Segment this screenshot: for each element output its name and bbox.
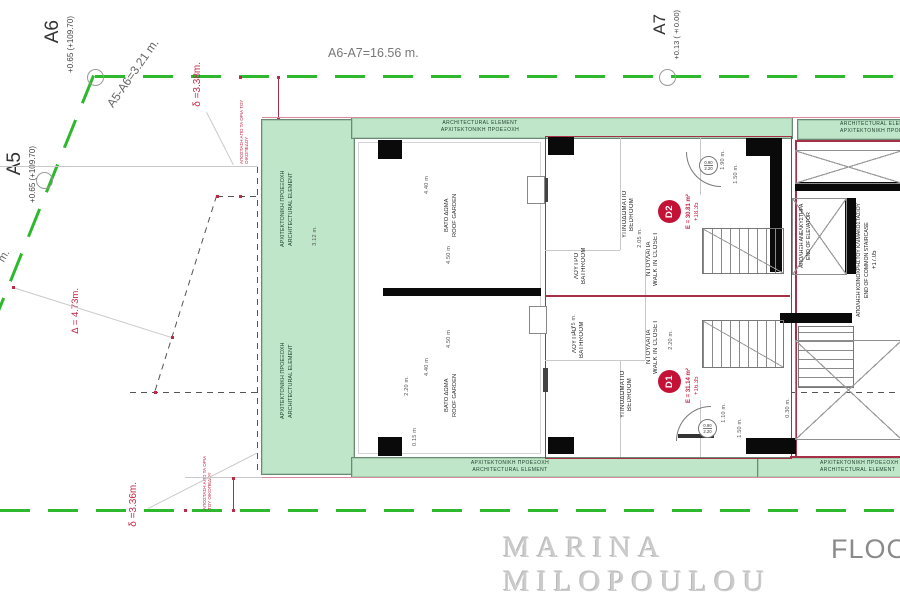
architectural-band-top-right-label: ARCHITECTURAL ELEMENT ΑΡΧΙΤΕΚΤΟΝΙΚΗ ΠΡΟΕ… bbox=[840, 121, 900, 134]
dim-text: 4.50 m bbox=[446, 246, 452, 264]
dim-marker bbox=[239, 195, 242, 198]
band-label-en: ARCHITECTURAL ELEMENT bbox=[288, 150, 294, 268]
common-staircase-label: ΑΠΟΛΗΞΗ ΚΟΙΝΟΧΡΗΣΤΟΥ ΚΛΙΜΑΚΟΣΤΑΣΙΟΥ END … bbox=[856, 200, 878, 320]
architectural-band-bottom-right-label: ΑΡΧΙΤΕΚΤΟΝΙΚΗ ΠΡΟΕΞΟΧΗ ARCHITECTURAL ELE… bbox=[820, 460, 900, 473]
band-label-en: ARCHITECTURAL ELEMENT bbox=[288, 322, 294, 440]
interior-wall bbox=[620, 137, 621, 250]
elevator-label: ΑΠΟΛΗΞΗ ΑΝΕΛΚΥΣΤΗΡΑ END OF ELEVATOR bbox=[799, 202, 812, 270]
dim-marker bbox=[232, 477, 235, 480]
band-label-gr: ΑΡΧΙΤΕΚΤΟΝΙΚΗ ΠΡΟΕΞΟΧΗ bbox=[280, 150, 286, 268]
roof-garden-en: ROOF GARDEN bbox=[452, 352, 458, 438]
d1-bedroom-label: ΥΠΝΟΔΩΜΑΤΙΟ BEDROOM bbox=[620, 358, 633, 430]
staircase-level: +17.05 bbox=[872, 200, 878, 320]
unit-badge-d1: D1 bbox=[658, 370, 681, 393]
leader-line bbox=[206, 112, 234, 165]
dim-text: 1.75 m. bbox=[571, 314, 577, 334]
column bbox=[548, 437, 574, 454]
dim-marker bbox=[171, 336, 174, 339]
door-height: 2.20 bbox=[704, 166, 712, 171]
door-height: 2.20 bbox=[703, 429, 711, 434]
survey-point-a6 bbox=[87, 69, 104, 86]
dim-text: 0.30 m. bbox=[785, 398, 791, 418]
d1-area-level: E = 31.14 m² +16.35 bbox=[686, 356, 700, 416]
survey-point-a7 bbox=[659, 69, 676, 86]
architectural-band-left-label-upper: ΑΡΧΙΤΕΚΤΟΝΙΚΗ ΠΡΟΕΞΟΧΗ ARCHITECTURAL ELE… bbox=[280, 150, 294, 268]
stair-unit-d1 bbox=[702, 320, 784, 368]
band-label-en: ARCHITECTURAL ELEMENT bbox=[820, 467, 900, 474]
closet-gr: ΝΤΟΥΛΑΠΑ bbox=[646, 310, 652, 384]
door-tag-d1: 0.90 2.20 bbox=[698, 419, 717, 438]
band-label-en: ARCHITECTURAL ELEMENT bbox=[840, 121, 900, 128]
core-outline-h bbox=[795, 140, 900, 142]
wall-segment bbox=[383, 288, 541, 296]
reference-line bbox=[0, 166, 258, 167]
plot-line-bottom bbox=[262, 477, 900, 478]
window-strip bbox=[543, 368, 548, 392]
leader-line bbox=[13, 287, 173, 338]
boundary-label-a5: A5 bbox=[4, 152, 26, 175]
band-label-gr: ΑΡΧΙΤΕΚΤΟΝΙΚΗ ΠΡΟΕΞΟΧΗ bbox=[840, 128, 900, 135]
dim-marker bbox=[239, 76, 242, 79]
d2-level: +18.35 bbox=[694, 182, 700, 242]
boundary-label-a7: A7 bbox=[650, 14, 670, 35]
setback-diagonal: Δ = 4.73m. bbox=[70, 288, 81, 334]
window-tag bbox=[529, 306, 547, 334]
closet-en: WALK IN CLOSET bbox=[653, 310, 659, 384]
unit-badge-d2: D2 bbox=[658, 200, 681, 223]
dim-text: 4.40 m bbox=[424, 176, 430, 194]
closet-gr: ΝΤΟΥΛΑΠΑ bbox=[646, 222, 652, 296]
unit-outline bbox=[545, 136, 792, 459]
dim-text: 1.50 m. bbox=[733, 164, 739, 184]
setback-note-bottom: ΑΠΟΣΤΑΣΗ ΑΠΟ ΤΑ ΟΡΙΑ ΤΟΥ ΟΙΚΟΠΕΔΟΥ bbox=[203, 452, 223, 510]
d1-area: E = 31.14 m² bbox=[686, 356, 692, 416]
dim-text: 1.10 m. bbox=[721, 403, 727, 423]
bedroom-gr: ΥΠΝΟΔΩΜΑΤΙΟ bbox=[622, 178, 628, 250]
unit-id-d1: D1 bbox=[664, 375, 675, 388]
architectural-band-top-label: ARCHITECTURAL ELEMENT ΑΡΧΙΤΕΚΤΟΝΙΚΗ ΠΡΟΕ… bbox=[400, 120, 560, 133]
boundary-elevation-a5: +0.65 (+109.70) bbox=[28, 146, 37, 203]
projection-line-vertical bbox=[257, 166, 258, 470]
boundary-elevation-a6: +0.65 (+109.70) bbox=[66, 16, 75, 73]
roof-garden-gr: ΒΑΤΟ ΔΩΜΑ bbox=[444, 352, 450, 438]
dim-marker bbox=[184, 509, 187, 512]
architectural-band-left bbox=[262, 120, 354, 474]
boundary-segment-a6a7: A6-A7=16.56 m. bbox=[328, 46, 419, 60]
bedroom-gr: ΥΠΝΟΔΩΜΑΤΙΟ bbox=[620, 358, 626, 430]
band-label-gr: ΑΡΧΙΤΕΚΤΟΝΙΚΗ ΠΡΟΕΞΟΧΗ bbox=[820, 460, 900, 467]
column bbox=[548, 137, 574, 155]
dim-marker bbox=[232, 509, 235, 512]
wall-segment bbox=[780, 313, 852, 323]
unit-divider bbox=[545, 295, 790, 297]
dim-marker bbox=[277, 76, 280, 79]
d2-bathroom-label: ΛΟΥΤΡΟ BATHROOM bbox=[574, 238, 587, 294]
dim-text: 4.40 m bbox=[424, 358, 430, 376]
architectural-band-bottom-label: ΑΡΧΙΤΕΚΤΟΝΙΚΗ ΠΡΟΕΞΟΧΗ ARCHITECTURAL ELE… bbox=[430, 460, 590, 473]
dim-marker bbox=[12, 286, 15, 289]
bath-en: BATHROOM bbox=[581, 238, 587, 294]
setback-bottom: δ =3.36m. bbox=[128, 482, 139, 527]
elevator-label-en: END OF ELEVATOR bbox=[806, 202, 812, 270]
window-tag bbox=[527, 176, 545, 204]
floor-plan-canvas: A6 +0.65 (+109.70) A5 +0.65 (+109.70) A7… bbox=[0, 0, 900, 600]
bedroom-en: BEDROOM bbox=[627, 358, 633, 430]
roof-garden-lower-label: ΒΑΤΟ ΔΩΜΑ ROOF GARDEN bbox=[444, 352, 458, 438]
survey-point-a5 bbox=[36, 172, 53, 189]
architectural-band-left-label-lower: ΑΡΧΙΤΕΚΤΟΝΙΚΗ ΠΡΟΕΞΟΧΗ ARCHITECTURAL ELE… bbox=[280, 322, 294, 440]
band-label-gr: ΑΡΧΙΤΕΚΤΟΝΙΚΗ ΠΡΟΕΞΟΧΗ bbox=[280, 322, 286, 440]
void-cross-bottom bbox=[795, 340, 900, 440]
bedroom-en: BEDROOM bbox=[629, 178, 635, 250]
wall-segment bbox=[746, 438, 796, 454]
staircase-label-gr: ΑΠΟΛΗΞΗ ΚΟΙΝΟΧΡΗΣΤΟΥ ΚΛΙΜΑΚΟΣΤΑΣΙΟΥ bbox=[856, 200, 862, 320]
band-label-en: ARCHITECTURAL ELEMENT bbox=[430, 467, 590, 474]
reference-line bbox=[185, 477, 262, 478]
roof-garden-en: ROOF GARDEN bbox=[452, 172, 458, 258]
d2-area-level: E = 30.81 m² +18.35 bbox=[686, 182, 700, 242]
band-label-gr: ΑΡΧΙΤΕΚΤΟΝΙΚΗ ΠΡΟΕΞΟΧΗ bbox=[400, 127, 560, 134]
elevator-label-gr: ΑΠΟΛΗΞΗ ΑΝΕΛΚΥΣΤΗΡΑ bbox=[799, 202, 805, 270]
site-boundary-left-diagonal bbox=[0, 75, 95, 313]
setback-note-top: ΑΠΟΣΤΑΣΗ ΑΠΟ ΤΑ ΟΡΙΑ ΤΟΥ ΟΙΚΟΠΕΔΟΥ bbox=[240, 72, 260, 164]
stair-unit-d2 bbox=[702, 228, 784, 274]
closet-en: WALK IN CLOSET bbox=[653, 222, 659, 296]
dim-text: 3.12 m. bbox=[312, 226, 318, 246]
projection-line-diagonal bbox=[154, 196, 217, 394]
dim-text: 1.50 m. bbox=[737, 418, 743, 438]
void-cross-top bbox=[795, 150, 900, 184]
door-tag-d2: 0.90 2.20 bbox=[699, 156, 718, 175]
dim-text: 1.90 m. bbox=[720, 150, 726, 170]
column bbox=[378, 140, 402, 159]
d2-closet-label: ΝΤΟΥΛΑΠΑ WALK IN CLOSET bbox=[646, 222, 659, 296]
dim-text: 2.20 m. bbox=[668, 330, 674, 350]
boundary-elevation-a7: +0.13 (±0.00) bbox=[672, 10, 681, 60]
dim-text: 2.05 m. bbox=[637, 228, 643, 248]
boundary-segment-a5a6: A5-A6=3.21 m. bbox=[104, 36, 162, 110]
bath-gr: ΛΟΥΤΡΟ bbox=[574, 238, 580, 294]
plan-title: FLOOR bbox=[831, 534, 900, 565]
core-outline-b bbox=[790, 456, 900, 458]
dim-marker bbox=[154, 391, 157, 394]
column bbox=[378, 437, 402, 456]
dim-text: 2.20 m. bbox=[404, 376, 410, 396]
dim-text: 4.50 m bbox=[446, 330, 452, 348]
bath-en: BATHROOM bbox=[579, 312, 585, 368]
boundary-fragment: m. bbox=[0, 248, 12, 265]
setback-dim-line bbox=[233, 478, 234, 511]
staircase-label-en: END OF COMMON STAIRCASE bbox=[864, 200, 870, 320]
setback-top: δ =3.38m. bbox=[192, 62, 203, 107]
site-boundary-top bbox=[95, 75, 900, 78]
d2-area: E = 30.81 m² bbox=[686, 182, 692, 242]
unit-id-d2: D2 bbox=[664, 205, 675, 218]
boundary-label-a6: A6 bbox=[42, 20, 64, 43]
d1-closet-label: ΝΤΟΥΛΑΠΑ WALK IN CLOSET bbox=[646, 310, 659, 384]
d2-bedroom-label: ΥΠΝΟΔΩΜΑΤΙΟ BEDROOM bbox=[622, 178, 635, 250]
dim-text: 0.15 m bbox=[412, 428, 418, 446]
dim-marker bbox=[216, 195, 219, 198]
plot-line-top bbox=[262, 117, 900, 118]
